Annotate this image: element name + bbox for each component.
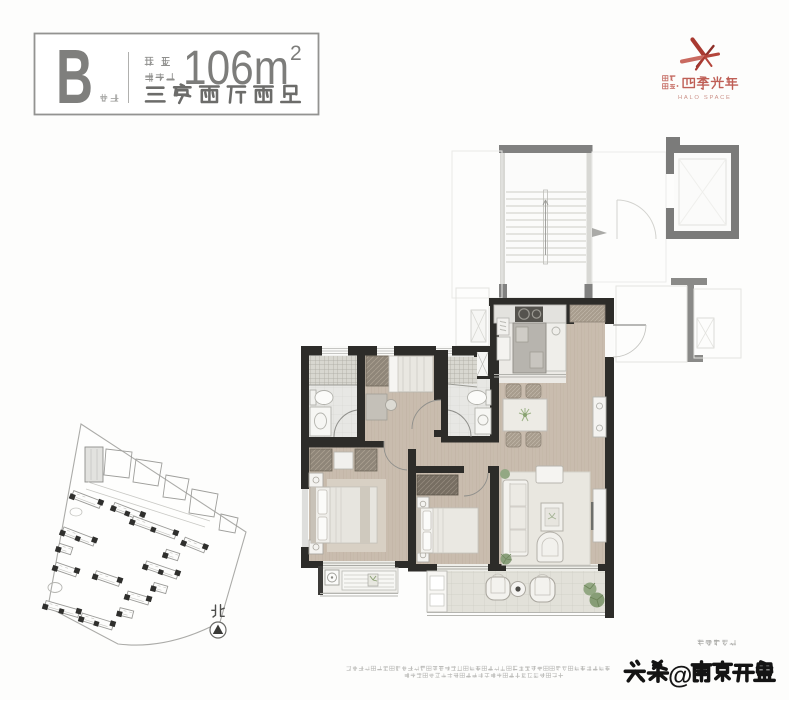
- svg-text:HALO SPACE: HALO SPACE: [678, 95, 732, 101]
- svg-text:@: @: [668, 662, 692, 690]
- svg-text:B: B: [56, 34, 93, 120]
- svg-text:2: 2: [290, 42, 302, 65]
